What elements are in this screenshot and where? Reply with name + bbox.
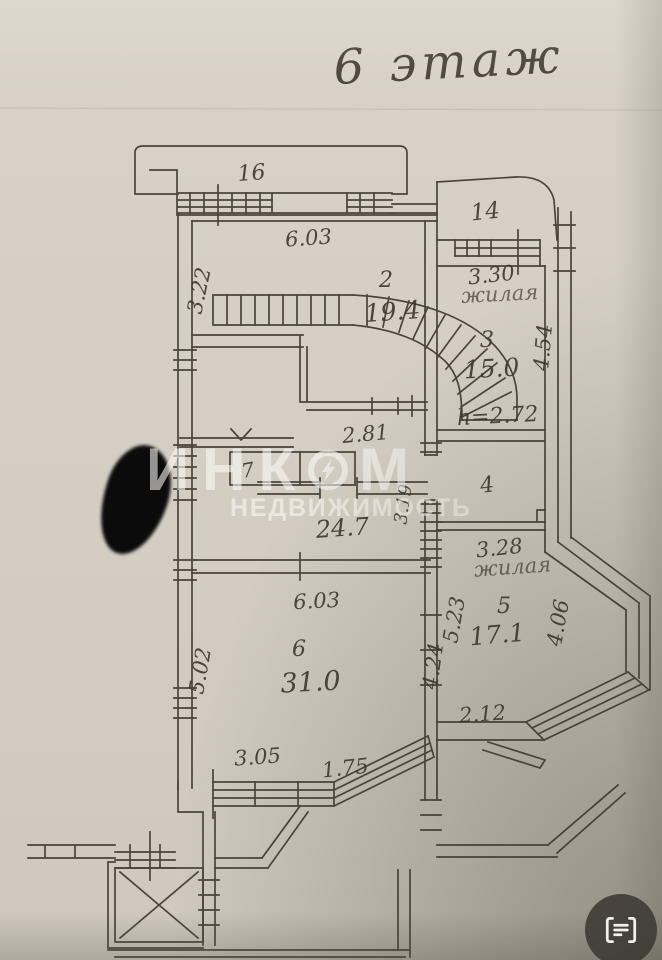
floor-title: 6 этаж [332, 28, 566, 96]
dim-room5-bottom: 2.12 [457, 700, 506, 727]
watermark-brand-suffix: М [359, 440, 409, 500]
dim-room5-left: 5.23 [438, 595, 470, 645]
dim-room5-right: 4.06 [542, 598, 574, 649]
dim-room3-right: 4.54 [529, 323, 557, 373]
room-5-area: 17.1 [468, 618, 526, 652]
dim-room2-left: 3.22 [183, 265, 216, 316]
dim-room6-bottom-right: 1.75 [321, 754, 370, 783]
dim-room6-bottom-left: 3.05 [233, 743, 281, 770]
room-16-number: 16 [237, 160, 267, 187]
lightning-circle-icon [306, 448, 350, 492]
room-2-area: 19.4 [364, 295, 422, 328]
dim-ceiling-height: h=2.72 [456, 402, 539, 431]
inkom-watermark: ИНК М НЕДВИЖИМОСТЬ [146, 437, 466, 503]
watermark-brand-prefix: ИНК [146, 440, 308, 500]
scan-text-button[interactable] [585, 894, 657, 960]
watermark-subtitle: НЕДВИЖИМОСТЬ [230, 494, 472, 523]
floorplan-photo: 6 этаж 16 14 2 19.4 3 15.0 4 5 17.1 6 31… [0, 0, 662, 960]
right-facade [558, 208, 571, 542]
dim-room6-top: 6.03 [293, 588, 341, 614]
room-14-number: 14 [469, 198, 501, 227]
dim-room2-top: 6.03 [284, 224, 332, 251]
room-6-area: 31.0 [280, 665, 342, 699]
scan-text-icon [602, 911, 640, 949]
room-3-area: 15.0 [463, 353, 520, 385]
room-3-number: 3 [480, 328, 494, 353]
window-band-room2 [178, 185, 392, 225]
labels: 6 этаж 16 14 2 19.4 3 15.0 4 5 17.1 6 31… [237, 28, 566, 700]
pencil-note-room3: жилая [460, 280, 538, 308]
room-6-number: 6 [292, 637, 306, 662]
room-5-number: 5 [497, 594, 511, 619]
elevator-shaft [108, 862, 203, 948]
dim-room6-right: 4.24 [418, 641, 448, 692]
pencil-note-room5: жилая [473, 552, 552, 581]
room-2-number: 2 [378, 268, 393, 293]
scan-edge-line [0, 108, 662, 110]
dim-room6-left: 5.02 [184, 646, 216, 696]
room-4-number: 4 [477, 472, 495, 499]
